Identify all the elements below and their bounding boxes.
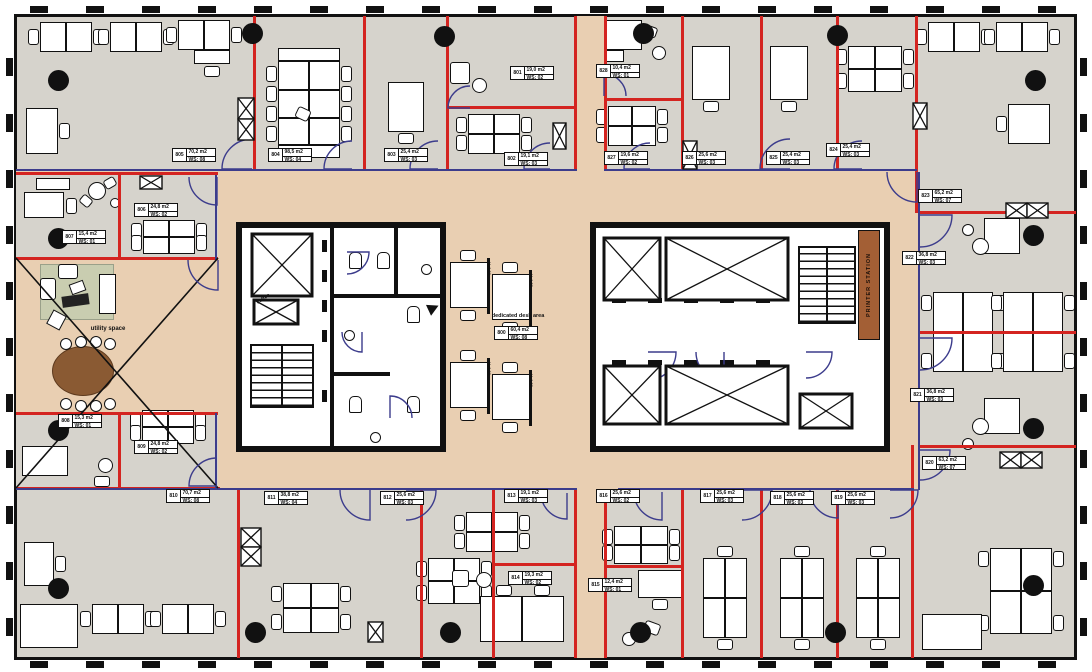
sink bbox=[344, 330, 355, 341]
room-number: 807 bbox=[63, 231, 77, 243]
chair bbox=[870, 639, 886, 650]
door-dash bbox=[322, 240, 327, 252]
desk-height-label: H=1,86 bbox=[486, 362, 492, 392]
room-label: 82525,4 m2WS: 03 bbox=[766, 151, 810, 165]
wall bbox=[918, 211, 1076, 214]
desk-divider bbox=[117, 604, 119, 634]
room-number: 806 bbox=[135, 204, 149, 216]
chair bbox=[150, 611, 161, 627]
sink bbox=[421, 264, 432, 275]
room-info: 19,1 m2WS: 03 bbox=[519, 490, 547, 502]
room-workstations: WS: 07 bbox=[933, 198, 961, 205]
meeting-chair bbox=[60, 398, 72, 410]
chair bbox=[454, 533, 465, 549]
wall bbox=[918, 331, 1076, 334]
room-label: 80219,1 m2WS: 03 bbox=[504, 152, 548, 166]
chair bbox=[341, 86, 352, 102]
room-info: 65,2 m2WS: 07 bbox=[933, 190, 961, 202]
room-info: 12,4 m2WS: 01 bbox=[603, 579, 631, 591]
facade-mullions-right bbox=[1080, 40, 1087, 636]
facade-mullions-left bbox=[6, 40, 13, 636]
chair bbox=[215, 611, 226, 627]
room-area: 36,8 m2 bbox=[925, 389, 953, 397]
room-info: 19,1 m2WS: 03 bbox=[519, 153, 547, 165]
room-area: 19,6 m2 bbox=[619, 152, 647, 160]
chair bbox=[519, 515, 530, 531]
room-number: 813 bbox=[505, 490, 519, 502]
wall bbox=[118, 172, 121, 260]
chair bbox=[195, 425, 206, 441]
room-number: 810 bbox=[167, 490, 181, 502]
room-number: 827 bbox=[605, 152, 619, 164]
column bbox=[245, 622, 266, 643]
room-workstations: WS: 01 bbox=[611, 73, 639, 80]
corner-desk bbox=[922, 614, 982, 650]
chair bbox=[454, 515, 465, 531]
room-number: 823 bbox=[919, 190, 933, 202]
armchair bbox=[58, 264, 78, 279]
desk bbox=[26, 108, 58, 154]
stool bbox=[652, 46, 666, 60]
room-label: 81925,6 m2WS: 03 bbox=[831, 491, 875, 505]
room-workstations: WS: 01 bbox=[603, 587, 631, 594]
room-info: 25,6 m2WS: 02 bbox=[611, 490, 639, 502]
door-dash bbox=[612, 360, 626, 365]
room-number: 800 bbox=[495, 327, 509, 339]
room-number: 809 bbox=[135, 441, 149, 453]
room-number: 817 bbox=[701, 490, 715, 502]
room-number: 826 bbox=[683, 152, 697, 164]
desk bbox=[22, 446, 68, 476]
chair bbox=[657, 127, 668, 143]
room-label: 81419,3 m2WS: 02 bbox=[508, 571, 552, 585]
side-table bbox=[472, 78, 487, 93]
room-info: 15,3 m2WS: 01 bbox=[73, 415, 101, 427]
room-workstations: WS: 08 bbox=[509, 335, 537, 342]
chair bbox=[496, 585, 512, 596]
room-info: 36,8 m2WS: 03 bbox=[917, 252, 945, 264]
column bbox=[1023, 225, 1044, 246]
chair bbox=[341, 126, 352, 142]
room-area: 25,6 m2 bbox=[697, 152, 725, 160]
desk-divider bbox=[468, 133, 520, 135]
room-number: 816 bbox=[597, 490, 611, 502]
chair bbox=[657, 109, 668, 125]
room-label: 81138,8 m2WS: 04 bbox=[264, 491, 308, 505]
room-workstations: WS: 03 bbox=[399, 157, 427, 164]
room-label: 82365,2 m2WS: 07 bbox=[918, 189, 962, 203]
room-info: 19,3 m2WS: 02 bbox=[523, 572, 551, 584]
desk bbox=[638, 570, 682, 598]
stair-divider bbox=[826, 248, 828, 322]
room-info: 25,4 m2WS: 03 bbox=[781, 152, 809, 164]
room-info: 24,8 m2WS: 02 bbox=[149, 441, 177, 453]
room-number: 815 bbox=[589, 579, 603, 591]
chair bbox=[519, 533, 530, 549]
glazed-partition bbox=[16, 169, 577, 171]
room-area: 60,4 m2 bbox=[509, 327, 537, 335]
column bbox=[48, 70, 69, 91]
room-label: 82625,6 m2WS: 03 bbox=[682, 151, 726, 165]
chair bbox=[460, 250, 476, 261]
desk-return bbox=[194, 50, 230, 64]
room-area: 25,6 m2 bbox=[785, 492, 813, 500]
meeting-chair bbox=[75, 336, 87, 348]
chair bbox=[460, 410, 476, 421]
column bbox=[1023, 575, 1044, 596]
room-info: 25,6 m2WS: 03 bbox=[846, 492, 874, 504]
wall bbox=[16, 172, 218, 175]
room-workstations: WS: 02 bbox=[149, 449, 177, 456]
door-dash bbox=[322, 330, 327, 342]
sofa bbox=[99, 274, 116, 314]
chair bbox=[341, 106, 352, 122]
task-chair bbox=[972, 238, 989, 255]
wall bbox=[574, 490, 577, 658]
room-workstations: WS: 04 bbox=[283, 157, 311, 164]
open-space-zone bbox=[577, 16, 604, 170]
wall bbox=[574, 16, 577, 170]
toilet bbox=[349, 252, 362, 269]
toilet bbox=[407, 306, 420, 323]
room-info: 25,6 m2WS: 03 bbox=[395, 492, 423, 504]
core-wall bbox=[394, 228, 398, 298]
desk-divider bbox=[877, 558, 879, 638]
chair bbox=[131, 235, 142, 251]
chair bbox=[717, 639, 733, 650]
wall bbox=[604, 490, 607, 658]
chair bbox=[196, 235, 207, 251]
door-dash bbox=[322, 270, 327, 282]
side-table bbox=[476, 572, 492, 588]
desk-divider bbox=[142, 426, 194, 428]
desk bbox=[1008, 104, 1050, 144]
room-info: 25,4 m2WS: 03 bbox=[399, 149, 427, 161]
room-label: 80325,4 m2WS: 03 bbox=[384, 148, 428, 162]
stool bbox=[962, 438, 974, 450]
column bbox=[242, 23, 263, 44]
room-workstations: WS: 03 bbox=[519, 161, 547, 168]
chair bbox=[978, 551, 989, 567]
chair bbox=[98, 29, 109, 45]
glazed-partition bbox=[604, 169, 917, 171]
chair bbox=[456, 117, 467, 133]
door-dash bbox=[648, 360, 662, 365]
wall bbox=[681, 490, 684, 658]
room-workstations: WS: 02 bbox=[149, 212, 177, 219]
wall bbox=[604, 565, 684, 568]
chair bbox=[66, 198, 77, 214]
room-label: 80924,8 m2WS: 02 bbox=[134, 440, 178, 454]
chair bbox=[984, 29, 995, 45]
room-info: 63,2 m2WS: 07 bbox=[937, 457, 965, 469]
room-label: 80498,5 m2WS: 04 bbox=[268, 148, 312, 162]
desk-divider bbox=[614, 544, 668, 546]
open-space-zone bbox=[577, 490, 604, 658]
room-info: 70,7 m2WS: 08 bbox=[181, 490, 209, 502]
chair bbox=[717, 546, 733, 557]
utility-space-label: utility space bbox=[58, 326, 158, 332]
chair bbox=[460, 350, 476, 361]
room-number: 801 bbox=[511, 67, 525, 79]
wall bbox=[760, 16, 763, 170]
room-workstations: WS: 03 bbox=[785, 500, 813, 507]
desk bbox=[984, 218, 1020, 254]
chair bbox=[996, 116, 1007, 132]
desk bbox=[450, 362, 488, 408]
chair bbox=[1053, 551, 1064, 567]
room-area: 12,4 m2 bbox=[603, 579, 631, 587]
wall bbox=[681, 16, 684, 170]
room-area: 19,1 m2 bbox=[519, 490, 547, 498]
room-label: 81070,7 m2WS: 08 bbox=[166, 489, 210, 503]
door-dash bbox=[756, 360, 770, 365]
room-area: 19,0 m2 bbox=[525, 67, 553, 75]
chair bbox=[502, 262, 518, 273]
room-area: 70,7 m2 bbox=[181, 490, 209, 498]
room-info: 24,8 m2WS: 02 bbox=[149, 204, 177, 216]
meeting-table bbox=[52, 346, 114, 396]
room-area: 63,2 m2 bbox=[937, 457, 965, 465]
task-chair bbox=[972, 418, 989, 435]
room-workstations: WS: 04 bbox=[279, 500, 307, 507]
room-number: 828 bbox=[597, 65, 611, 77]
wall bbox=[16, 257, 218, 260]
column bbox=[434, 26, 455, 47]
chair bbox=[204, 66, 220, 77]
room-label: 81225,6 m2WS: 03 bbox=[380, 491, 424, 505]
room-workstations: WS: 03 bbox=[846, 500, 874, 507]
door-dash bbox=[720, 360, 734, 365]
door-dash bbox=[684, 298, 698, 303]
wall bbox=[604, 98, 684, 101]
room-workstations: WS: 03 bbox=[841, 152, 869, 159]
chair bbox=[502, 362, 518, 373]
door-dash bbox=[684, 360, 698, 365]
room-area: 25,4 m2 bbox=[781, 152, 809, 160]
bench-cap bbox=[278, 48, 340, 61]
room-workstations: WS: 08 bbox=[187, 157, 215, 164]
meeting-chair bbox=[104, 338, 116, 350]
chair bbox=[903, 49, 914, 65]
wall bbox=[420, 490, 423, 658]
room-workstations: WS: 07 bbox=[937, 465, 965, 472]
corner-desk bbox=[20, 604, 78, 648]
chair bbox=[534, 585, 550, 596]
wall bbox=[492, 563, 577, 566]
core-wall bbox=[330, 228, 334, 446]
desk-height-label: H=1,86 bbox=[486, 262, 492, 292]
printer-station-label: PRINTER STATION bbox=[866, 253, 872, 317]
chair bbox=[266, 66, 277, 82]
toilet bbox=[377, 252, 390, 269]
room-area: 25,4 m2 bbox=[399, 149, 427, 157]
door-dash bbox=[720, 298, 734, 303]
room-label: 82425,4 m2WS: 03 bbox=[826, 143, 870, 157]
room-workstations: WS: 01 bbox=[77, 239, 105, 246]
room-label: 82810,4 m2WS: 01 bbox=[596, 64, 640, 78]
room-label: 82063,2 m2WS: 07 bbox=[922, 456, 966, 470]
printer-station: PRINTER STATION bbox=[858, 230, 880, 340]
column bbox=[48, 578, 69, 599]
chair bbox=[231, 27, 242, 43]
room-area: 36,8 m2 bbox=[917, 252, 945, 260]
chair bbox=[271, 586, 282, 602]
room-number: 820 bbox=[923, 457, 937, 469]
room-workstations: WS: 03 bbox=[781, 160, 809, 167]
room-number: 819 bbox=[832, 492, 846, 504]
room-info: 25,6 m2WS: 03 bbox=[785, 492, 813, 504]
room-area: 24,8 m2 bbox=[149, 441, 177, 449]
room-area: 15,4 m2 bbox=[77, 231, 105, 239]
door-dash bbox=[612, 298, 626, 303]
room-area: 38,8 m2 bbox=[279, 492, 307, 500]
toilet bbox=[407, 396, 420, 413]
sink bbox=[370, 432, 381, 443]
room-info: 19,0 m2WS: 02 bbox=[525, 67, 553, 79]
room-label: 82236,8 m2WS: 03 bbox=[902, 251, 946, 265]
desk-divider bbox=[65, 22, 67, 52]
chair bbox=[781, 101, 797, 112]
room-number: 825 bbox=[767, 152, 781, 164]
room-label: 80060,4 m2WS: 08 bbox=[494, 326, 538, 340]
room-number: 821 bbox=[911, 389, 925, 401]
desk-divider bbox=[608, 125, 656, 127]
wall bbox=[918, 445, 1076, 448]
column bbox=[633, 23, 654, 44]
armchair bbox=[452, 570, 469, 587]
room-area: 25,4 m2 bbox=[841, 144, 869, 152]
facade-mullions-top bbox=[30, 6, 1062, 13]
glazed-partition bbox=[16, 488, 577, 490]
door-dash bbox=[322, 300, 327, 312]
room-number: 804 bbox=[269, 149, 283, 161]
room-label: 81825,6 m2WS: 03 bbox=[770, 491, 814, 505]
room-label: 82136,8 m2WS: 03 bbox=[910, 388, 954, 402]
room-info: 70,2 m2WS: 08 bbox=[187, 149, 215, 161]
room-label: 80815,3 m2WS: 01 bbox=[58, 414, 102, 428]
chair bbox=[340, 614, 351, 630]
facade-mullions-bottom bbox=[30, 661, 1062, 668]
room-area: 19,3 m2 bbox=[523, 572, 551, 580]
chair bbox=[266, 106, 277, 122]
meeting-chair bbox=[75, 400, 87, 412]
room-info: 25,6 m2WS: 03 bbox=[715, 490, 743, 502]
room-number: 812 bbox=[381, 492, 395, 504]
room-info: 10,4 m2WS: 01 bbox=[611, 65, 639, 77]
desk bbox=[770, 46, 808, 100]
armchair bbox=[40, 278, 56, 300]
chair bbox=[921, 353, 932, 369]
desk-divider bbox=[1021, 22, 1023, 52]
desk-divider bbox=[143, 236, 195, 238]
room-area: 70,2 m2 bbox=[187, 149, 215, 157]
armchair bbox=[450, 62, 470, 84]
glazed-partition bbox=[618, 488, 914, 490]
room-area: 25,6 m2 bbox=[395, 492, 423, 500]
room-label: 80624,8 m2WS: 02 bbox=[134, 203, 178, 217]
chair bbox=[28, 29, 39, 45]
room-info: 25,6 m2WS: 03 bbox=[697, 152, 725, 164]
column bbox=[825, 622, 846, 643]
room-area: 24,8 m2 bbox=[149, 204, 177, 212]
desk-divider bbox=[953, 22, 955, 52]
room-area: 25,6 m2 bbox=[611, 490, 639, 498]
room-workstations: WS: 01 bbox=[73, 423, 101, 430]
room-info: 19,6 m2WS: 02 bbox=[619, 152, 647, 164]
room-workstations: WS: 03 bbox=[715, 498, 743, 505]
room-workstations: WS: 03 bbox=[925, 397, 953, 404]
room-area: 25,6 m2 bbox=[715, 490, 743, 498]
room-label: 80570,2 m2WS: 08 bbox=[172, 148, 216, 162]
room-label: 81625,6 m2WS: 02 bbox=[596, 489, 640, 503]
desk-divider bbox=[278, 89, 340, 91]
room-number: 818 bbox=[771, 492, 785, 504]
room-number: 805 bbox=[173, 149, 187, 161]
room-label: 82719,6 m2WS: 02 bbox=[604, 151, 648, 165]
chair bbox=[870, 546, 886, 557]
dedicated-desk-area-label: dedicated desk area bbox=[470, 313, 566, 319]
chair bbox=[1049, 29, 1060, 45]
core-wall bbox=[334, 372, 390, 376]
room-workstations: WS: 03 bbox=[697, 160, 725, 167]
room-info: 36,8 m2WS: 03 bbox=[925, 389, 953, 401]
chair bbox=[340, 586, 351, 602]
floor-plan: utility space dedicated desk area PRINTE… bbox=[0, 0, 1092, 672]
room-label: 81319,1 m2WS: 03 bbox=[504, 489, 548, 503]
chair bbox=[398, 133, 414, 144]
door-dash bbox=[756, 298, 770, 303]
chair bbox=[456, 135, 467, 151]
service-core-left bbox=[236, 222, 446, 452]
room-number: 811 bbox=[265, 492, 279, 504]
chair bbox=[55, 556, 66, 572]
room-workstations: WS: 02 bbox=[619, 160, 647, 167]
stool bbox=[962, 224, 974, 236]
column bbox=[1023, 418, 1044, 439]
stool bbox=[98, 458, 113, 473]
chair bbox=[521, 117, 532, 133]
wall bbox=[446, 106, 576, 109]
column bbox=[827, 25, 848, 46]
room-area: 25,6 m2 bbox=[846, 492, 874, 500]
room-label: 81725,6 m2WS: 03 bbox=[700, 489, 744, 503]
stair-divider bbox=[281, 346, 283, 406]
room-label: 81512,4 m2WS: 01 bbox=[588, 578, 632, 592]
chair bbox=[794, 546, 810, 557]
desk bbox=[24, 542, 54, 586]
room-area: 98,5 m2 bbox=[283, 149, 311, 157]
wall bbox=[492, 490, 495, 658]
room-workstations: WS: 03 bbox=[917, 260, 945, 267]
room-workstations: WS: 03 bbox=[395, 500, 423, 507]
chair bbox=[703, 101, 719, 112]
glazed-partition bbox=[215, 413, 217, 490]
chair bbox=[794, 639, 810, 650]
glazed-partition bbox=[918, 172, 920, 490]
chair bbox=[669, 545, 680, 561]
chair bbox=[921, 295, 932, 311]
room-area: 65,2 m2 bbox=[933, 190, 961, 198]
desk-return bbox=[606, 50, 624, 62]
desk-height-label: H=1,86 bbox=[528, 274, 534, 304]
desk-divider bbox=[521, 596, 523, 642]
room-info: 60,4 m2WS: 08 bbox=[509, 327, 537, 339]
door-dash bbox=[322, 390, 327, 402]
chair bbox=[1064, 353, 1075, 369]
room-number: 824 bbox=[827, 144, 841, 156]
room-workstations: WS: 02 bbox=[611, 498, 639, 505]
